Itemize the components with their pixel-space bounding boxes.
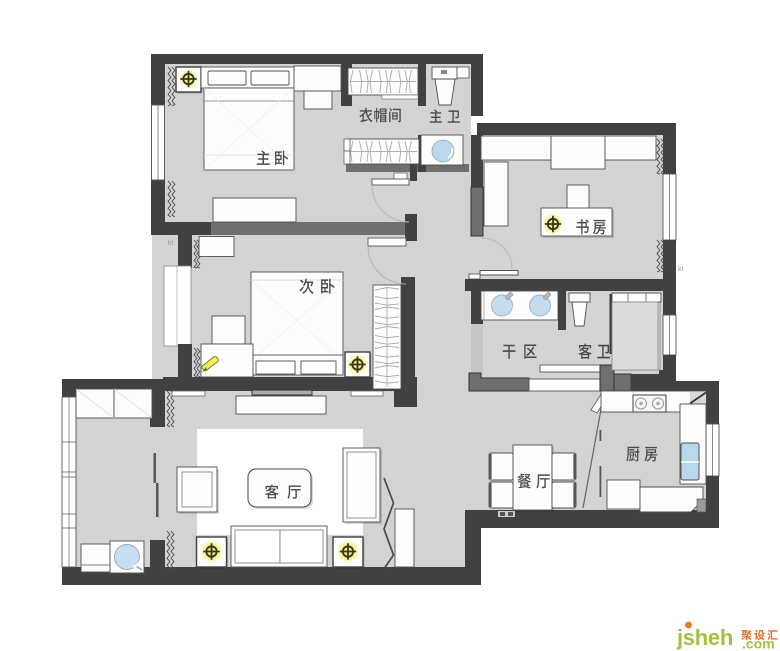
svg-text:jsheh: jsheh: [676, 625, 733, 650]
svg-text:kt: kt: [678, 266, 684, 273]
svg-text:kt: kt: [168, 240, 174, 247]
svg-text:.com: .com: [742, 636, 775, 651]
